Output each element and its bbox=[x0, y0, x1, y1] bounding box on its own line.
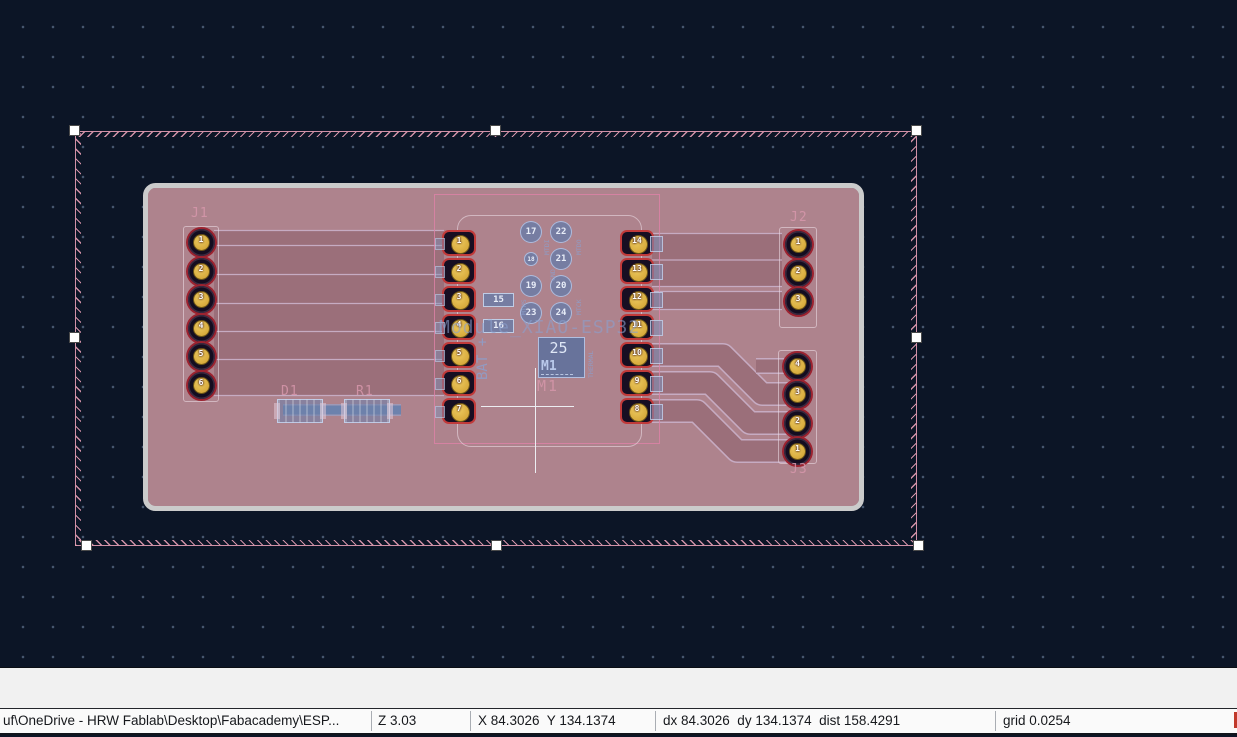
zone-corner-handle[interactable] bbox=[913, 540, 924, 551]
zone-mid-handle[interactable] bbox=[69, 332, 80, 343]
pin-number: 9 bbox=[622, 376, 652, 385]
file-path: uf\OneDrive - HRW Fablab\Desktop\Fabacad… bbox=[3, 713, 339, 728]
module-pad[interactable]: 7 bbox=[442, 398, 476, 424]
through-hole-pad[interactable]: 5 bbox=[188, 343, 215, 370]
pin-number: 2 bbox=[784, 416, 811, 425]
module-pad[interactable]: 6 bbox=[442, 370, 476, 396]
cursor-position: X 84.3026 Y 134.1374 bbox=[478, 713, 616, 728]
pin-number: 5 bbox=[188, 349, 215, 358]
module-center-pad[interactable]: 22 bbox=[550, 221, 572, 243]
component-J2[interactable]: J2 123 bbox=[779, 210, 817, 328]
separator bbox=[655, 711, 656, 731]
smd-body[interactable] bbox=[277, 399, 323, 423]
module-center-pad[interactable]: 17 bbox=[520, 221, 542, 243]
pin-number: 3 bbox=[444, 292, 474, 301]
pin-number: 17 bbox=[526, 227, 537, 237]
zoom-level: Z 3.03 bbox=[378, 713, 416, 728]
module-fab-ref: M1 bbox=[541, 359, 573, 375]
zone-corner-handle[interactable] bbox=[69, 125, 80, 136]
pin-number: 3 bbox=[784, 387, 811, 396]
traces-j1-to-module[interactable] bbox=[214, 230, 444, 396]
crosshair-cursor-horizontal bbox=[481, 406, 574, 407]
module-silk-ref: M1 bbox=[537, 377, 559, 395]
pin-number: 1 bbox=[785, 237, 812, 246]
zone-mid-handle[interactable] bbox=[490, 125, 501, 136]
pin-number: 6 bbox=[188, 378, 215, 387]
pin-number: 3 bbox=[188, 292, 215, 301]
through-hole-pad[interactable]: 2 bbox=[188, 258, 215, 285]
smd-body[interactable] bbox=[344, 399, 390, 423]
reference-designator: R1 bbox=[356, 384, 374, 399]
pad-column: 123 bbox=[785, 231, 812, 315]
module-pad[interactable]: 13 bbox=[620, 258, 654, 284]
pin-number: 2 bbox=[444, 264, 474, 273]
zone-mid-handle[interactable] bbox=[911, 332, 922, 343]
zone-corner-handle[interactable] bbox=[911, 125, 922, 136]
pin-number: 1 bbox=[188, 235, 215, 244]
pin-number: 7 bbox=[444, 404, 474, 413]
through-hole-pad[interactable]: 6 bbox=[188, 372, 215, 399]
through-hole-pad[interactable]: 1 bbox=[785, 231, 812, 258]
pin-number: 6 bbox=[444, 376, 474, 385]
module-pad[interactable]: 12 bbox=[620, 286, 654, 312]
pin-number: 2 bbox=[785, 266, 812, 275]
net-label: MTDO bbox=[575, 221, 583, 255]
module-pad[interactable]: 10 bbox=[620, 342, 654, 368]
module-pad[interactable]: 3 bbox=[442, 286, 476, 312]
pin-number: 4 bbox=[784, 359, 811, 368]
thermal-label: THERMAL bbox=[587, 340, 595, 378]
kicad-window: J1 123456 Module_XIAO-ESP32 BAT + 123456… bbox=[0, 0, 1237, 737]
info-bar: uf\OneDrive - HRW Fablab\Desktop\Fabacad… bbox=[0, 708, 1237, 735]
through-hole-pad[interactable]: 3 bbox=[188, 286, 215, 313]
module-pad[interactable]: 1 bbox=[442, 230, 476, 256]
pin-number: 14 bbox=[622, 236, 652, 245]
grid-setting: grid 0.0254 bbox=[1003, 713, 1071, 728]
pin-number: 18 bbox=[527, 256, 534, 263]
net-label: MTMS bbox=[520, 281, 528, 315]
through-hole-pad[interactable]: 1 bbox=[784, 438, 811, 465]
module-value-text: Module_XIAO-ESP32 bbox=[439, 317, 640, 338]
component-J1[interactable]: J1 123456 bbox=[183, 206, 219, 406]
through-hole-pad[interactable]: 4 bbox=[188, 315, 215, 342]
pin-number: 8 bbox=[622, 404, 652, 413]
module-pad[interactable]: 2 bbox=[442, 258, 476, 284]
pin-number: 1 bbox=[784, 444, 811, 453]
component-J3[interactable]: 4321 J3 bbox=[778, 350, 817, 478]
pin-number: 12 bbox=[622, 292, 652, 301]
net-label: GND bbox=[549, 251, 557, 281]
component-D1[interactable]: D1 bbox=[273, 388, 327, 424]
module-center-pad[interactable]: 18 bbox=[524, 252, 538, 266]
through-hole-pad[interactable]: 1 bbox=[188, 229, 215, 256]
module-pad[interactable]: 5 bbox=[442, 342, 476, 368]
pin-number: 1 bbox=[444, 236, 474, 245]
module-thermal-pad[interactable]: 25 M1 bbox=[538, 337, 585, 378]
component-M1-module[interactable]: Module_XIAO-ESP32 BAT + 1234567 14131211… bbox=[434, 194, 660, 444]
crosshair-cursor-vertical bbox=[535, 368, 536, 473]
through-hole-pad[interactable]: 2 bbox=[784, 410, 811, 437]
net-label: MTCK bbox=[575, 281, 583, 315]
through-hole-pad[interactable]: 2 bbox=[785, 260, 812, 287]
component-R1[interactable]: R1 bbox=[340, 388, 394, 424]
pin-number: 20 bbox=[556, 281, 567, 291]
reference-designator: J3 bbox=[790, 462, 808, 477]
through-hole-pad[interactable]: 3 bbox=[785, 288, 812, 315]
reference-designator: J1 bbox=[191, 206, 209, 221]
module-pad-15[interactable]: 15 bbox=[483, 293, 514, 307]
zone-mid-handle[interactable] bbox=[491, 540, 502, 551]
traces-module-to-j2[interactable] bbox=[652, 233, 782, 310]
pin-number: 5 bbox=[444, 348, 474, 357]
pin-number: 15 bbox=[493, 295, 504, 305]
zone-status-bar: Resolved Netclass Default Priority 0 Lay… bbox=[0, 667, 1237, 708]
through-hole-pad[interactable]: 3 bbox=[784, 381, 811, 408]
pad-column: 4321 bbox=[784, 353, 811, 466]
pin-number: 25 bbox=[539, 339, 578, 357]
separator bbox=[995, 711, 996, 731]
zone-corner-handle[interactable] bbox=[81, 540, 92, 551]
module-pad[interactable]: 8 bbox=[620, 398, 654, 424]
net-label: MTDI bbox=[543, 221, 551, 255]
pin-number: 4 bbox=[188, 321, 215, 330]
separator bbox=[371, 711, 372, 731]
pcb-canvas[interactable]: J1 123456 Module_XIAO-ESP32 BAT + 123456… bbox=[0, 0, 1237, 667]
pin-number: 3 bbox=[785, 294, 812, 303]
pad-column: 123456 bbox=[188, 229, 215, 399]
reference-designator: J2 bbox=[790, 210, 808, 225]
reference-designator: D1 bbox=[281, 384, 299, 399]
module-pad[interactable]: 14 bbox=[620, 230, 654, 256]
separator bbox=[470, 711, 471, 731]
pin-number: 22 bbox=[556, 227, 567, 237]
module-pad[interactable]: 9 bbox=[620, 370, 654, 396]
pin-number: 13 bbox=[622, 264, 652, 273]
pin-number: 21 bbox=[556, 254, 567, 264]
pin-number: 10 bbox=[622, 348, 652, 357]
pin-number: 2 bbox=[188, 264, 215, 273]
cursor-delta: dx 84.3026 dy 134.1374 dist 158.4291 bbox=[663, 713, 900, 728]
through-hole-pad[interactable]: 4 bbox=[784, 353, 811, 380]
